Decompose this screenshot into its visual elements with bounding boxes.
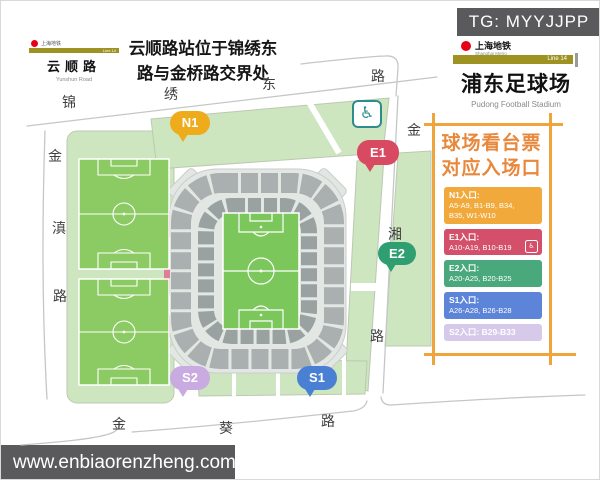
east-green-strip: [345, 157, 384, 391]
road-label-north: 东: [262, 76, 276, 92]
wheelchair-access-icon: ♿: [352, 100, 382, 128]
path-cut: [342, 358, 346, 396]
road-label-north: 绣: [164, 86, 178, 102]
road-label-east: 金: [407, 122, 421, 138]
road-label-north: 路: [371, 68, 385, 84]
road-label-west: 金: [48, 148, 62, 164]
road-label-west: 路: [53, 288, 67, 304]
gate-bubble-e2: E2: [378, 242, 416, 265]
training-pitch-north: [79, 159, 169, 269]
road-label-east: 湘: [388, 226, 402, 242]
road-label-south: 葵: [219, 420, 233, 436]
screenshot-root: 锦 绣 东 路 金 滇 路 金 葵 路 金 湘 路 上海地铁 Line 14 云…: [0, 0, 600, 480]
gate-bubble-e1: E1: [357, 140, 399, 165]
road-label-south: 路: [321, 413, 335, 429]
stadium-bowl: [164, 167, 349, 375]
gate-bubble-n1: N1: [170, 111, 210, 135]
training-pitch-south: [79, 279, 169, 385]
road-label-west: 滇: [52, 220, 66, 236]
main-football-pitch: [223, 213, 299, 329]
gate-bubble-s1: S1: [297, 366, 337, 390]
road-label-north: 锦: [62, 94, 76, 110]
road-label-east: 路: [370, 328, 384, 344]
stadium-map: 锦 绣 东 路 金 滇 路 金 葵 路 金 湘 路: [1, 1, 600, 480]
gate-bubble-s2: S2: [170, 366, 210, 390]
road-label-south: 金: [112, 416, 126, 432]
path-cut: [351, 283, 389, 291]
